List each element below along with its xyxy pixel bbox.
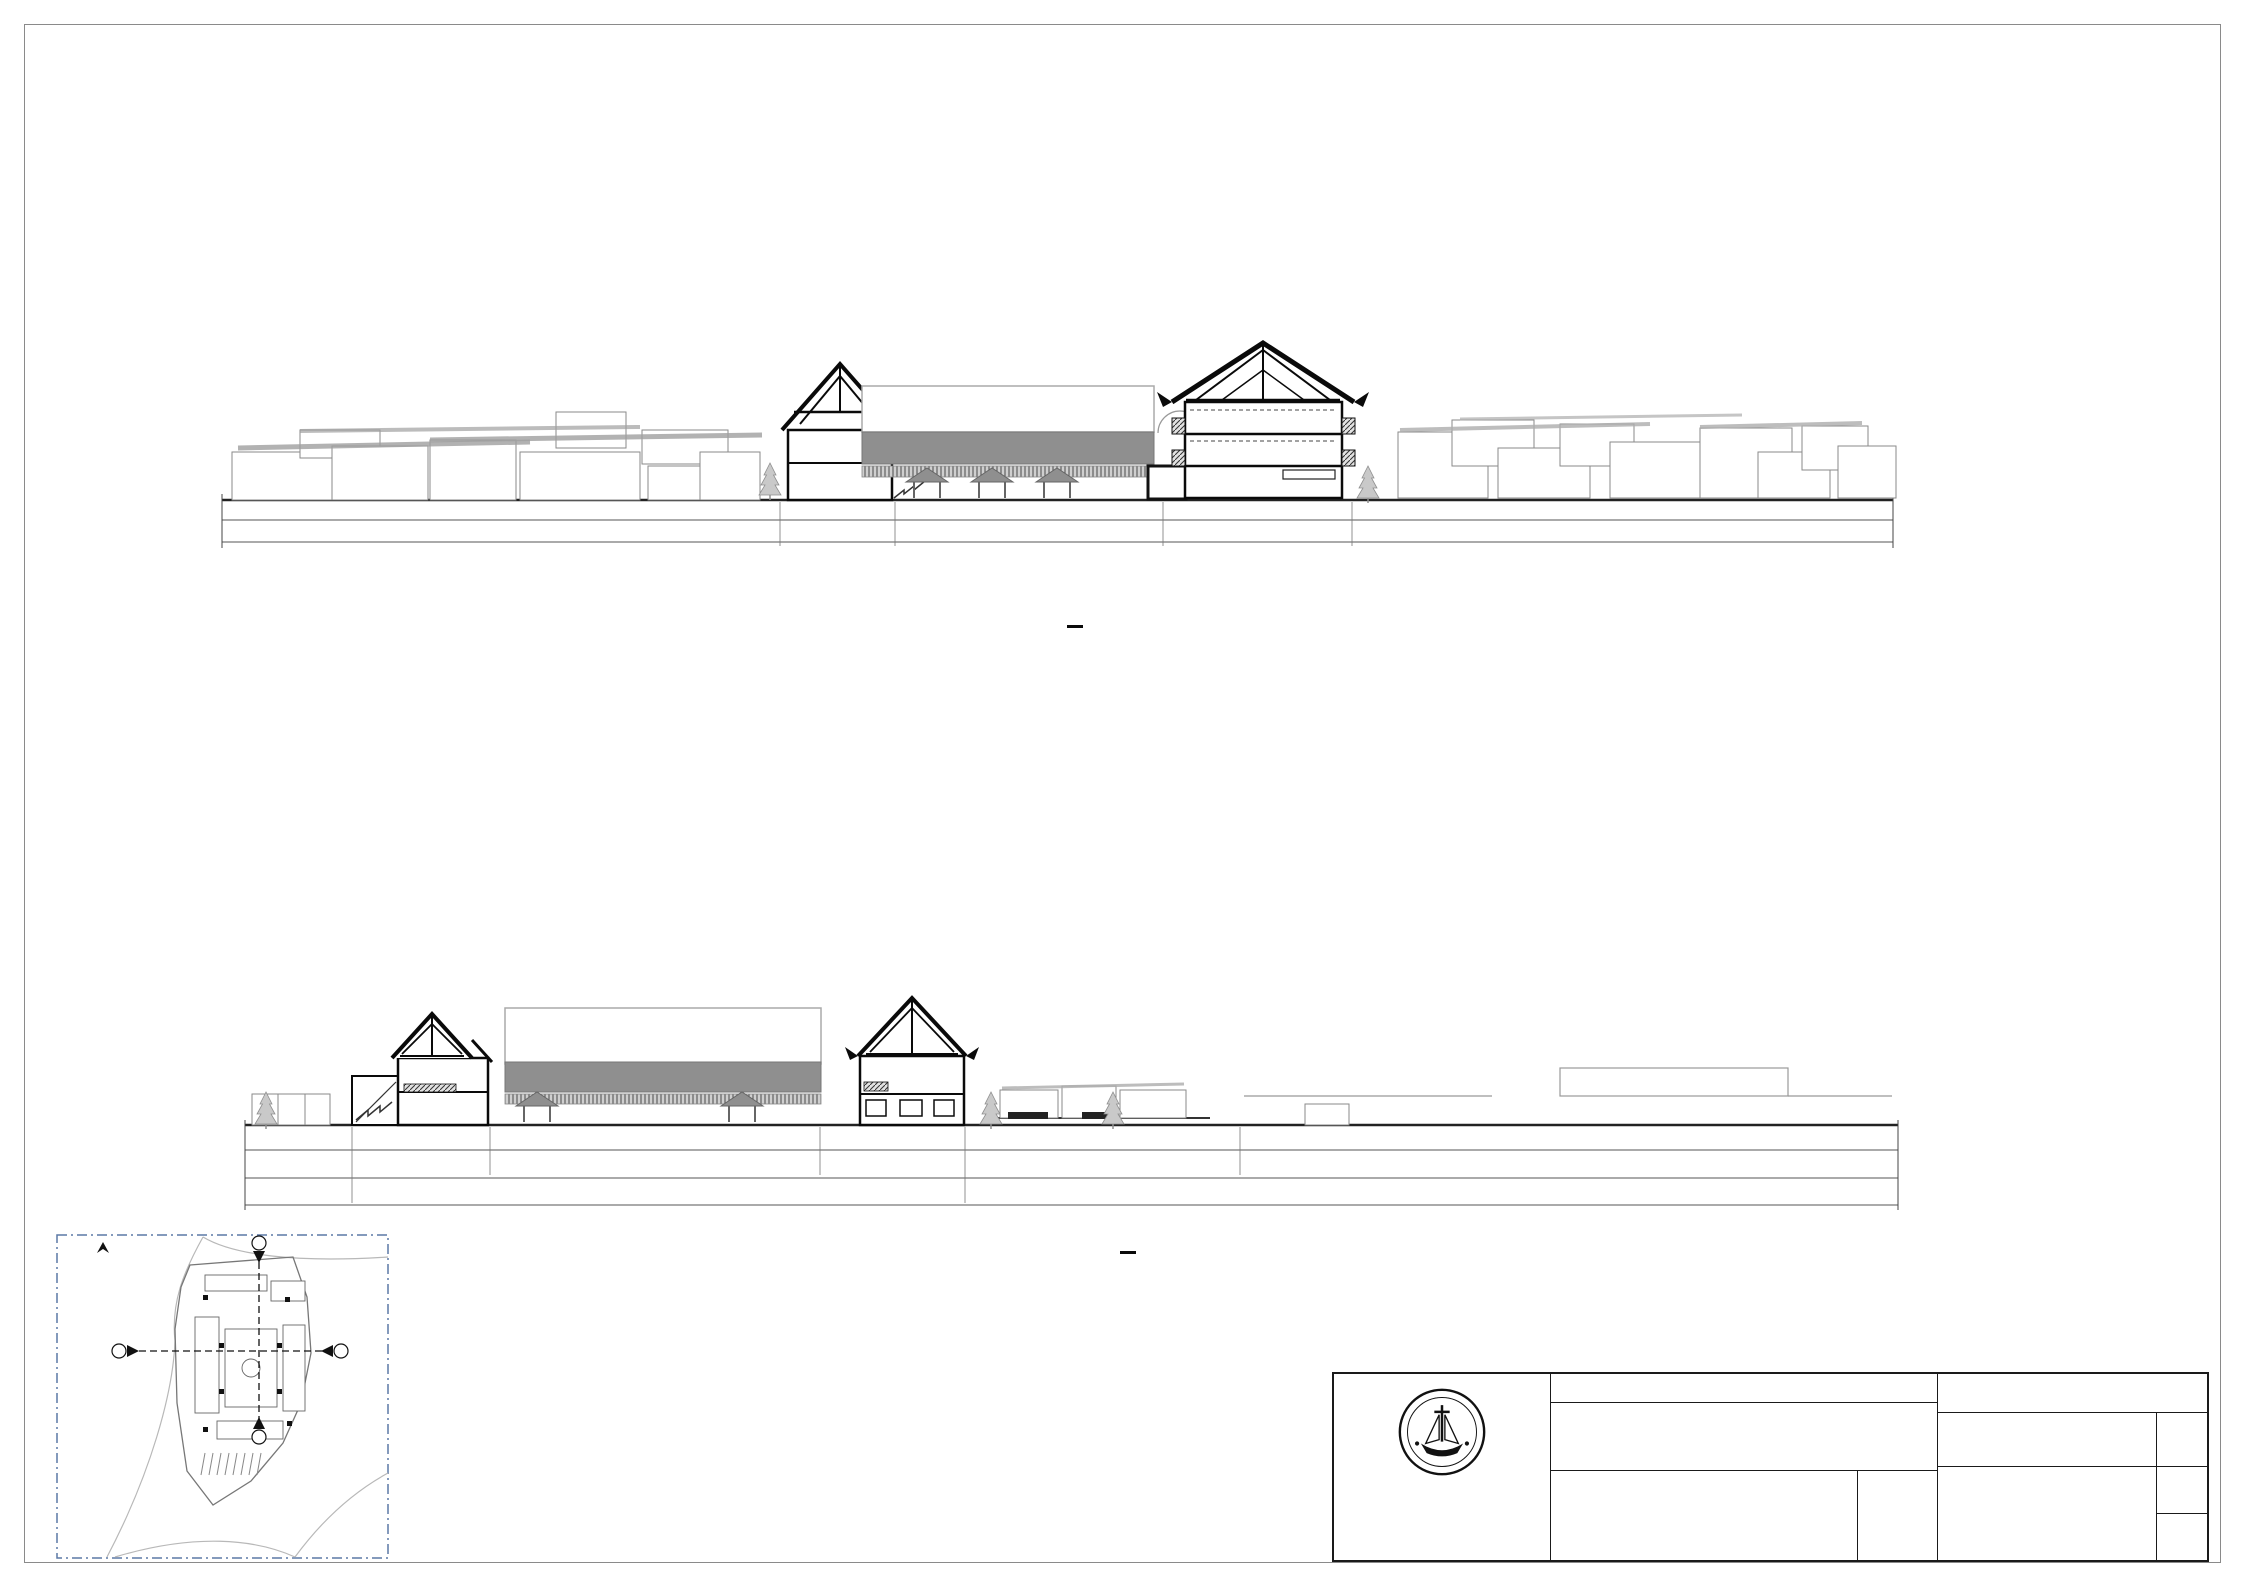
tree-icon bbox=[759, 463, 781, 500]
section-bb-linework bbox=[245, 998, 1898, 1210]
kelompok-cell bbox=[2156, 1412, 2207, 1466]
judul-gambar-cell bbox=[1550, 1470, 1857, 1560]
village-desa-sade bbox=[232, 412, 760, 500]
lembar-cell bbox=[2156, 1466, 2207, 1513]
architectural-sheet: { "sections": [ { "id": "a", "title": "P… bbox=[0, 0, 2245, 1587]
judul-tugas-cell bbox=[1550, 1402, 1937, 1470]
university-logo-icon bbox=[1396, 1386, 1488, 1483]
village-permukiman bbox=[1398, 420, 1896, 498]
title-block bbox=[1332, 1372, 2209, 1562]
area-parkir-bb bbox=[1244, 1068, 1892, 1125]
nrp-value bbox=[1938, 1423, 2156, 1466]
titleblock-header bbox=[1550, 1374, 1937, 1402]
tree-icon bbox=[980, 1092, 1002, 1129]
building-toko-bb bbox=[845, 998, 979, 1125]
tree-icon bbox=[1357, 466, 1379, 503]
institution-cell bbox=[1334, 1374, 1550, 1560]
skala-cell bbox=[1857, 1470, 1937, 1560]
skala-value bbox=[1858, 1485, 1937, 1560]
keymap-parking bbox=[201, 1453, 261, 1475]
mentor-cell bbox=[1937, 1466, 2156, 1560]
building-pemintalan-bb bbox=[352, 1014, 492, 1125]
section-bb-title bbox=[1120, 1248, 1136, 1254]
drawing-title bbox=[1551, 1485, 1857, 1560]
section-aa-title bbox=[1067, 622, 1083, 628]
nama-cell bbox=[1937, 1374, 2207, 1412]
key-plan bbox=[55, 1233, 391, 1561]
building-penenunan-bb bbox=[505, 1008, 821, 1104]
desa-sade-strip-bb bbox=[988, 1084, 1210, 1119]
kelompok-value bbox=[2157, 1423, 2207, 1466]
jumlah-cell bbox=[2156, 1513, 2207, 1560]
nrp-cell bbox=[1937, 1412, 2156, 1466]
nama-value bbox=[1938, 1382, 2207, 1412]
building-museum-aa bbox=[1157, 343, 1369, 498]
section-aa-linework bbox=[222, 343, 1896, 548]
